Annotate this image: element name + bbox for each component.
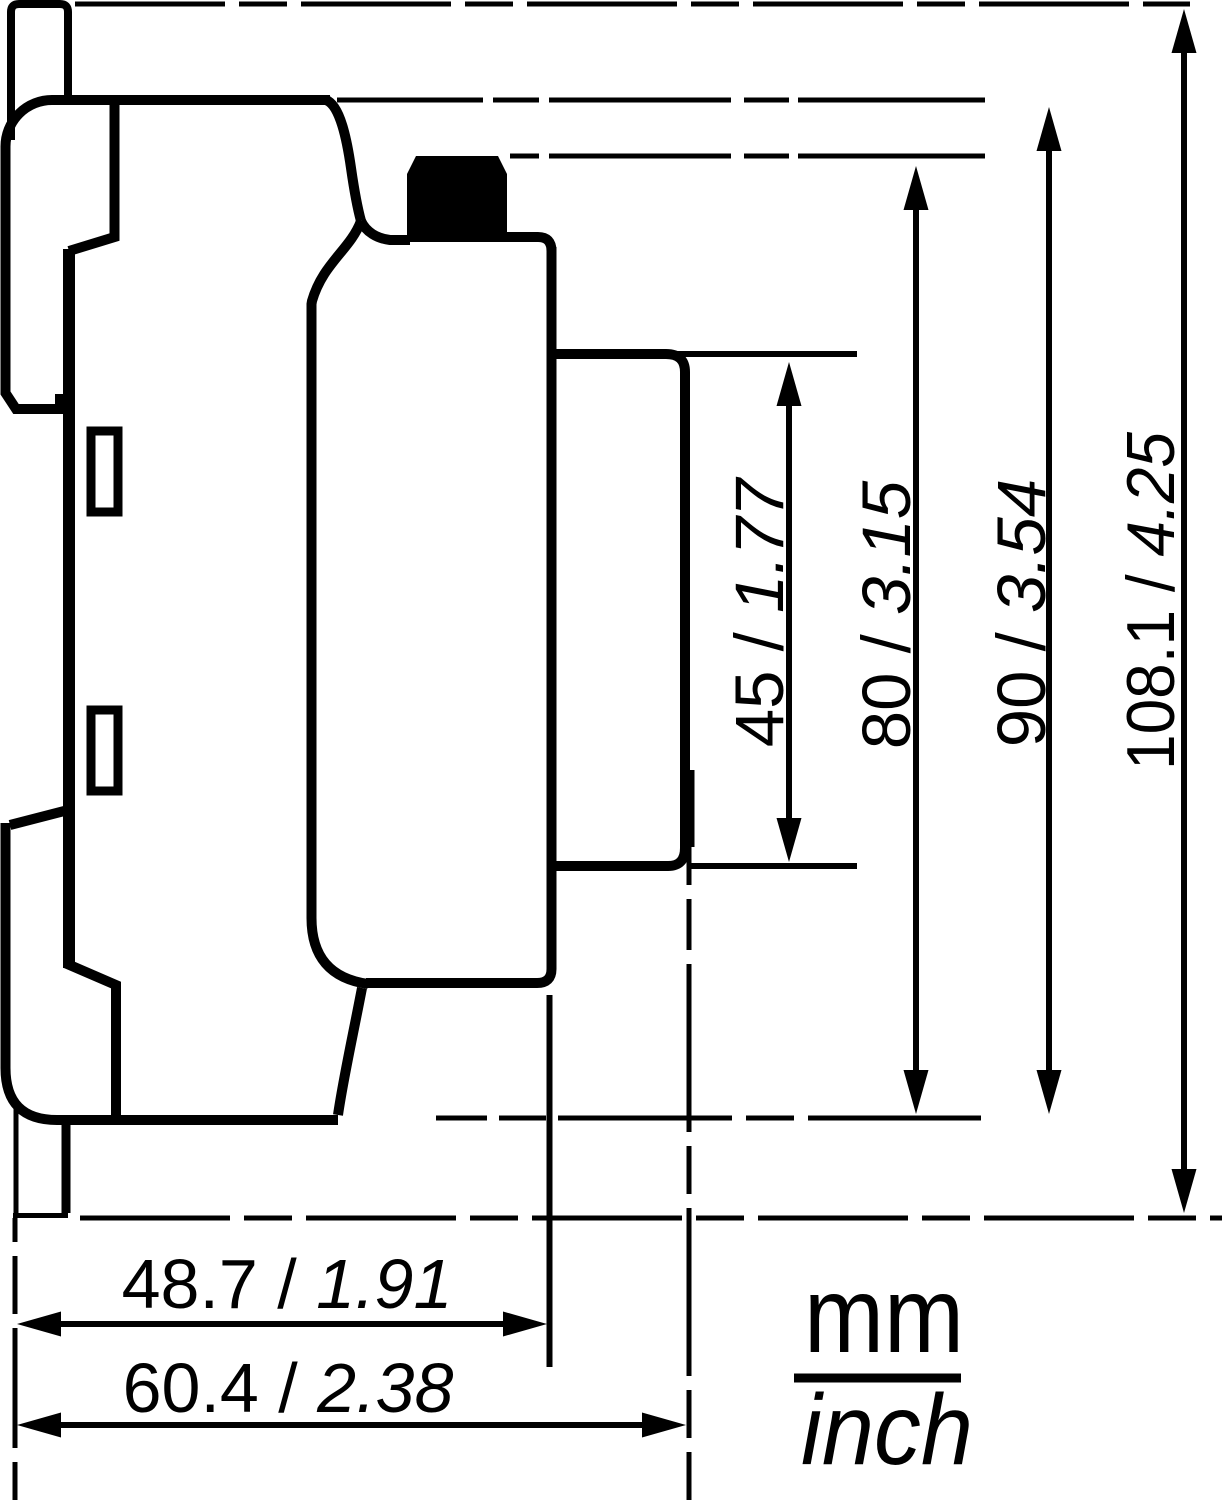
svg-text:60.4 / 2.38: 60.4 / 2.38 <box>123 1349 454 1427</box>
svg-text:90 / 3.54: 90 / 3.54 <box>983 479 1060 748</box>
svg-text:45 / 1.77: 45 / 1.77 <box>721 476 798 747</box>
svg-text:mm: mm <box>804 1254 964 1375</box>
svg-text:80 / 3.15: 80 / 3.15 <box>848 480 925 749</box>
svg-text:108.1 / 4.25: 108.1 / 4.25 <box>1113 432 1189 770</box>
svg-text:inch: inch <box>801 1374 973 1486</box>
svg-text:48.7 / 1.91: 48.7 / 1.91 <box>122 1245 453 1323</box>
